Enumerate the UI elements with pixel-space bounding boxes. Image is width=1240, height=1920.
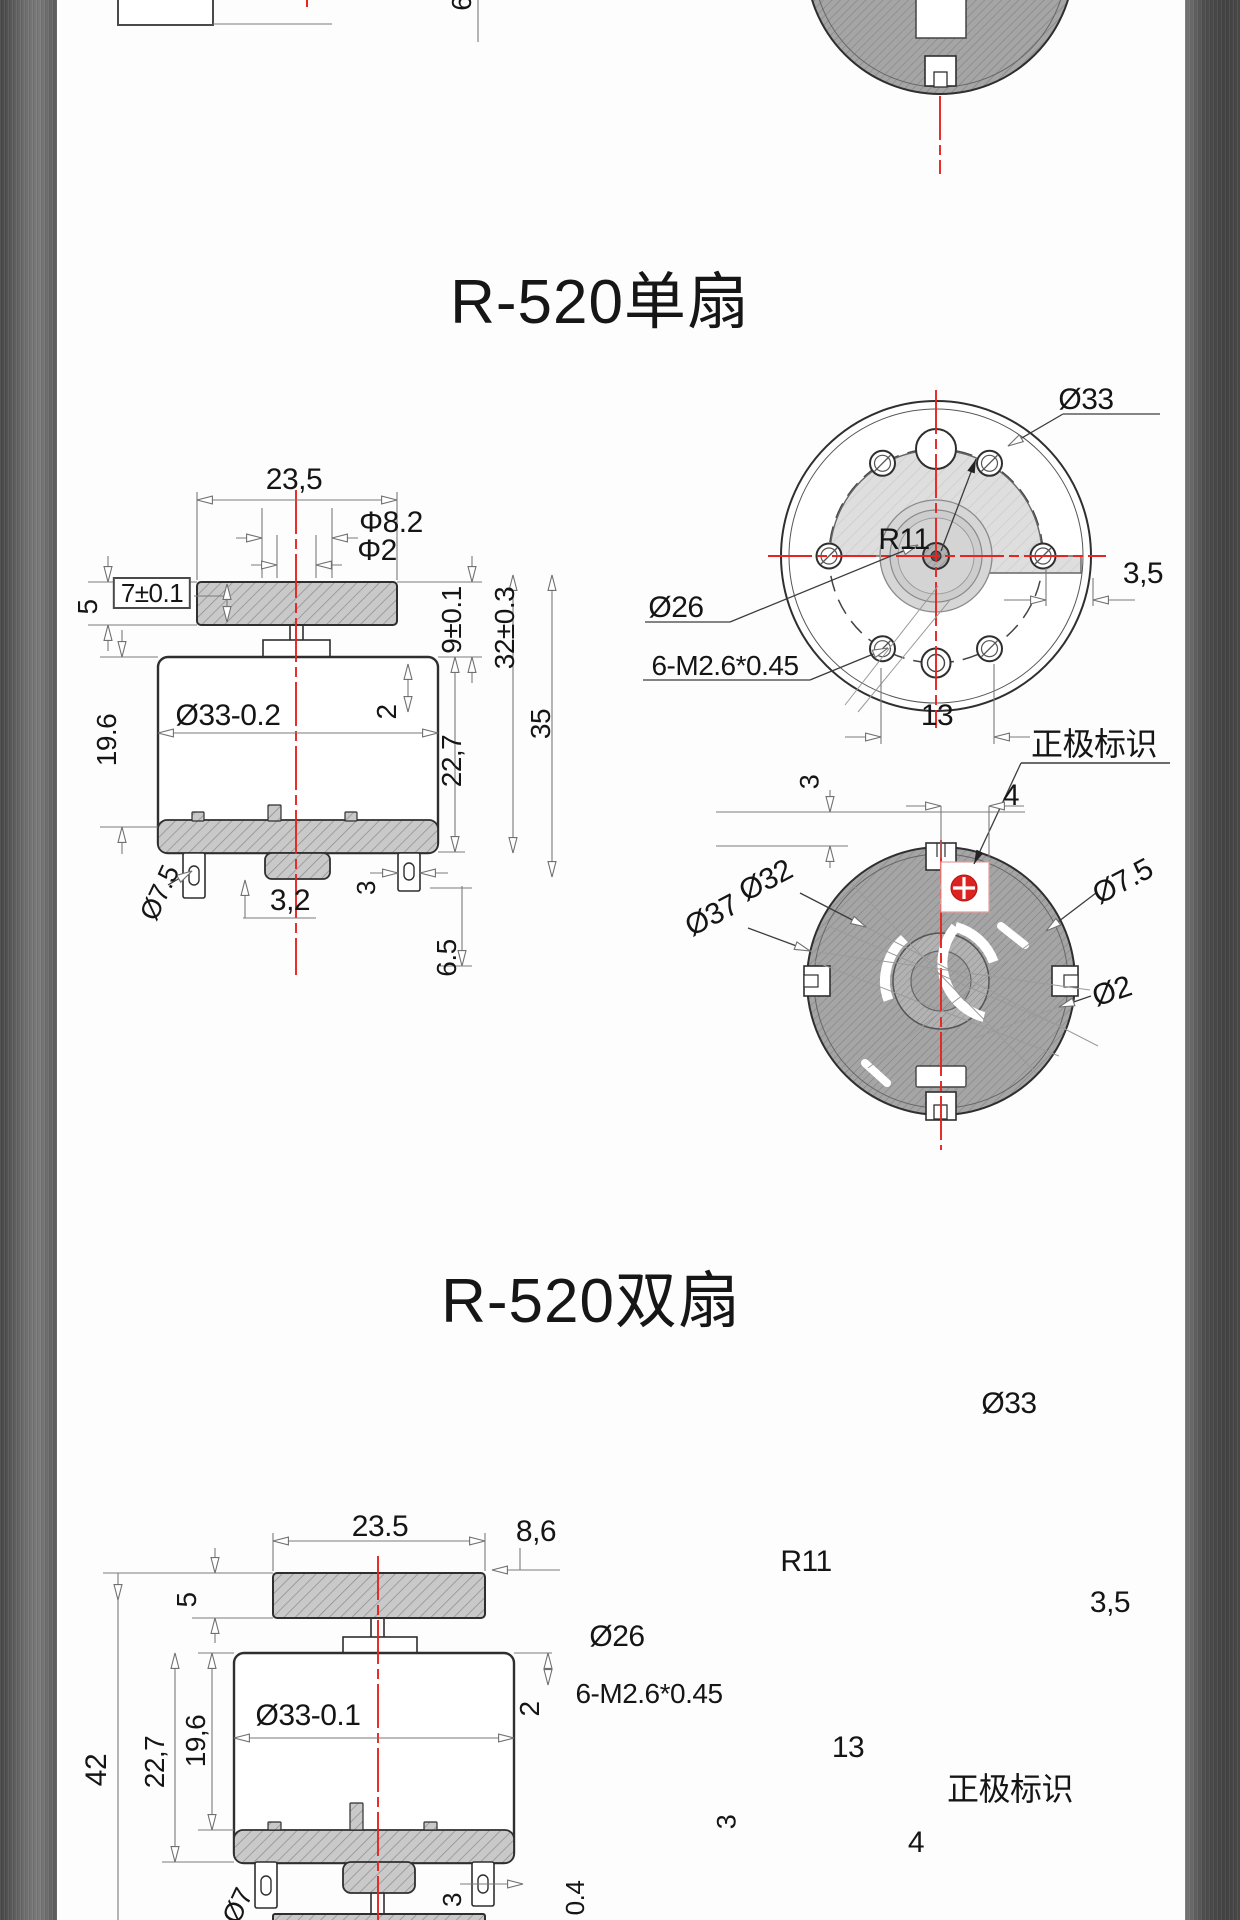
section-title-double-fan: R-520双扇 <box>441 1250 741 1340</box>
drawing-page: R-520单扇 R-520双扇 23,5Φ8.2Φ27±0.159±0.119.… <box>0 0 1240 1920</box>
section-title-single-fan: R-520单扇 <box>450 251 750 341</box>
metal-border-right <box>1185 0 1240 1920</box>
metal-border-left <box>0 0 57 1920</box>
